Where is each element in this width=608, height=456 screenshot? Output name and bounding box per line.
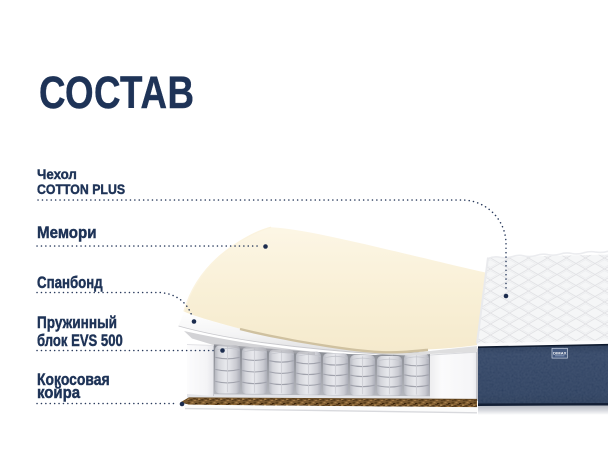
svg-text:DIMAX: DIMAX [553,350,567,355]
